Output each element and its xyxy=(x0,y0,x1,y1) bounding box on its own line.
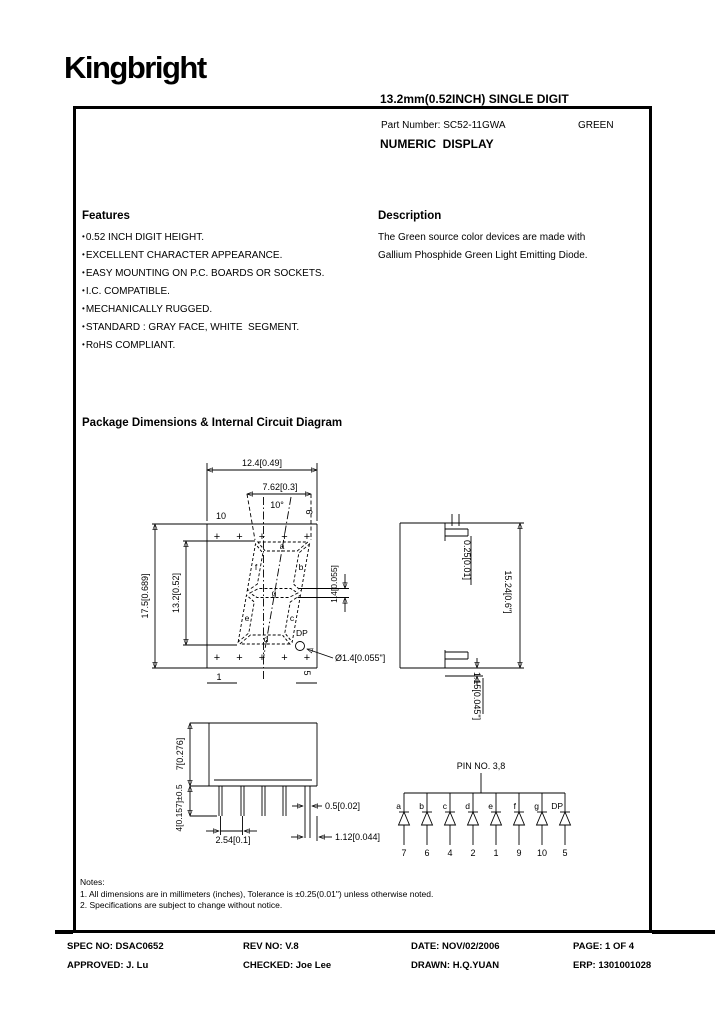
description-line2: Gallium Phosphide Green Light Emitting D… xyxy=(378,247,588,265)
pin-6-label: 6 xyxy=(304,509,314,514)
svg-text:+: + xyxy=(281,652,287,664)
dim-lead: 1.15[0.045"] xyxy=(472,672,482,720)
circuit-branch: f 9 xyxy=(514,793,525,858)
datasheet-page: { "header": { "logo": "Kingbright", "tit… xyxy=(0,0,720,1012)
footer-rule-left xyxy=(55,930,73,934)
circuit-branch: d 2 xyxy=(465,793,478,858)
front-view: 12.4[0.49] 7.62[0.3] 10° 17.5[0.689] 13.… xyxy=(140,458,385,683)
segment-label: e xyxy=(488,801,493,811)
dim-seg-thickness: 1.4[0.055] xyxy=(329,565,339,603)
dim-width: 12.4[0.49] xyxy=(242,458,282,468)
dp-dim: Ø1.4[0.055"] xyxy=(335,653,385,663)
dim-lead-len: 4[0.157]±0.5 xyxy=(174,784,184,831)
dp-label: DP xyxy=(296,628,308,638)
segment-c-label: c xyxy=(290,613,295,623)
part-number: Part Number: SC52-11GWA xyxy=(381,120,505,131)
segment-e-label: e xyxy=(245,613,250,623)
feature-item: •RoHS COMPLIANT. xyxy=(82,336,324,354)
segment-f-label: f xyxy=(255,562,258,572)
doc-title-line1: 13.2mm(0.52INCH) SINGLE DIGIT xyxy=(380,92,569,107)
svg-text:+: + xyxy=(214,652,220,664)
segment-d-label: d xyxy=(264,634,269,644)
feature-text: EASY MOUNTING ON P.C. BOARDS OR SOCKETS. xyxy=(86,268,325,279)
svg-text:+: + xyxy=(236,652,242,664)
svg-text:+: + xyxy=(236,531,242,543)
dim-char-width: 7.62[0.3] xyxy=(262,482,297,492)
circuit-diagram: PIN NO. 3,8 a 7 b 6 c 4 d 2 xyxy=(396,761,570,858)
pin-number: 10 xyxy=(537,848,547,858)
bullet-icon: • xyxy=(82,322,85,331)
footer-erp: ERP: 1301001028 xyxy=(573,960,651,971)
common-pin-label: PIN NO. 3,8 xyxy=(457,761,506,771)
pin-number: 4 xyxy=(447,848,452,858)
dim-lead-off: 1.12[0.044] xyxy=(335,832,380,842)
bullet-icon: • xyxy=(82,268,85,277)
bullet-icon: • xyxy=(82,286,85,295)
feature-text: EXCELLENT CHARACTER APPEARANCE. xyxy=(86,250,283,261)
footer-drawn: DRAWN: H.Q.YUAN xyxy=(411,960,499,971)
segment-label: b xyxy=(419,801,424,811)
footer-checked: CHECKED: Joe Lee xyxy=(243,960,331,971)
circuit-branch: DP 5 xyxy=(551,793,570,858)
pin-number: 7 xyxy=(401,848,406,858)
segment-label: f xyxy=(514,801,517,811)
footer-date: DATE: NOV/02/2006 xyxy=(411,941,500,952)
features-list: •0.52 INCH DIGIT HEIGHT. •EXCELLENT CHAR… xyxy=(82,228,324,354)
segment-g-label: g xyxy=(272,588,277,598)
dim-length: 15.24[0.6"] xyxy=(503,570,513,613)
footer-rev-no: REV NO: V.8 xyxy=(243,941,299,952)
footer-rule-right xyxy=(652,930,715,934)
dim-body: 7[0.276] xyxy=(175,738,185,771)
dim-height: 17.5[0.689] xyxy=(140,573,150,618)
brand-logo: Kingbright xyxy=(64,50,206,86)
bullet-icon: • xyxy=(82,232,85,241)
feature-text: STANDARD : GRAY FACE, WHITE SEGMENT. xyxy=(86,322,299,333)
profile-view: 7[0.276] 4[0.157]±0.5 2.54[0.1] 0.5[0.02… xyxy=(174,723,380,845)
side-view: 0.25[0.01] 15.24[0.6"] 1.15[0.045"] xyxy=(400,514,524,720)
segment-a-label: a xyxy=(280,541,285,551)
pin-number: 1 xyxy=(493,848,498,858)
dim-pitch: 2.54[0.1] xyxy=(215,835,250,845)
features-heading: Features xyxy=(82,210,130,222)
circuit-branch: b 6 xyxy=(419,793,432,858)
circuit-branch: a 7 xyxy=(396,793,409,858)
footer-spec-no: SPEC NO: DSAC0652 xyxy=(67,941,164,952)
pin-number: 6 xyxy=(424,848,429,858)
pin-number: 9 xyxy=(516,848,521,858)
segment-label: g xyxy=(534,801,539,811)
svg-text:+: + xyxy=(304,531,310,543)
feature-item: •0.52 INCH DIGIT HEIGHT. xyxy=(82,228,324,246)
footer-approved: APPROVED: J. Lu xyxy=(67,960,148,971)
feature-item: •EXCELLENT CHARACTER APPEARANCE. xyxy=(82,246,324,264)
dp-circle xyxy=(296,642,305,651)
segment-label: d xyxy=(465,801,470,811)
feature-text: I.C. COMPATIBLE. xyxy=(86,286,170,297)
segment-label: c xyxy=(443,801,448,811)
description-heading: Description xyxy=(378,210,441,222)
feature-item: •STANDARD : GRAY FACE, WHITE SEGMENT. xyxy=(82,318,324,336)
feature-text: 0.52 INCH DIGIT HEIGHT. xyxy=(86,232,204,243)
dim-standoff: 0.25[0.01] xyxy=(462,540,472,580)
footer-page: PAGE: 1 OF 4 xyxy=(573,941,634,952)
bullet-icon: • xyxy=(82,250,85,259)
circuit-branch: e 1 xyxy=(488,793,501,858)
bullet-icon: • xyxy=(82,340,85,349)
pin-10-label: 10 xyxy=(216,511,226,521)
svg-text:+: + xyxy=(259,652,265,664)
pin-5-label: 5 xyxy=(302,670,312,675)
circuit-branch: c 4 xyxy=(443,793,456,858)
circuit-branch: g 10 xyxy=(534,793,547,858)
color-label: GREEN xyxy=(578,120,614,131)
dim-char-height: 13.2[0.52] xyxy=(171,573,181,613)
pin-number: 2 xyxy=(470,848,475,858)
segment-b-label: b xyxy=(299,562,304,572)
feature-item: •EASY MOUNTING ON P.C. BOARDS OR SOCKETS… xyxy=(82,264,324,282)
dim-lead-w: 0.5[0.02] xyxy=(325,801,360,811)
svg-text:+: + xyxy=(304,652,310,664)
note-item: 2. Specifications are subject to change … xyxy=(80,900,433,912)
package-heading: Package Dimensions & Internal Circuit Di… xyxy=(82,417,342,429)
note-item: 1. All dimensions are in millimeters (in… xyxy=(80,889,433,901)
svg-text:+: + xyxy=(259,531,265,543)
feature-item: •I.C. COMPATIBLE. xyxy=(82,282,324,300)
description-text: The Green source color devices are made … xyxy=(378,229,588,264)
feature-text: MECHANICALLY RUGGED. xyxy=(86,304,212,315)
feature-item: •MECHANICALLY RUGGED. xyxy=(82,300,324,318)
segment-label: a xyxy=(396,801,401,811)
package-diagram: 12.4[0.49] 7.62[0.3] 10° 17.5[0.689] 13.… xyxy=(73,440,652,872)
feature-text: RoHS COMPLIANT. xyxy=(86,340,175,351)
segment-label: DP xyxy=(551,801,563,811)
svg-text:+: + xyxy=(214,531,220,543)
notes-heading: Notes: xyxy=(80,877,433,889)
pin-number: 5 xyxy=(562,848,567,858)
description-line1: The Green source color devices are made … xyxy=(378,229,588,247)
bullet-icon: • xyxy=(82,304,85,313)
dim-angle: 10° xyxy=(270,500,284,510)
notes-block: Notes: 1. All dimensions are in millimet… xyxy=(80,877,433,912)
pin-1-label: 1 xyxy=(216,672,221,682)
